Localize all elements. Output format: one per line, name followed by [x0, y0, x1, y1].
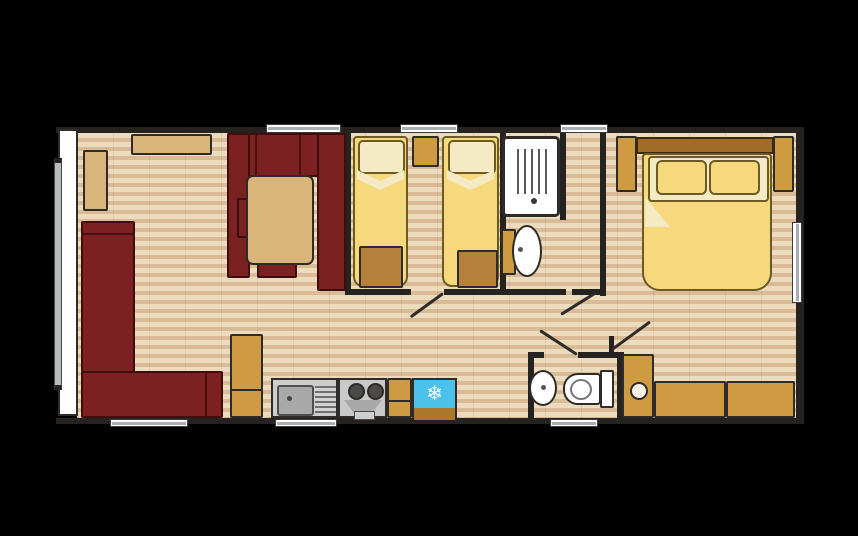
wardrobe-handle [630, 382, 648, 400]
oven-door [354, 411, 375, 420]
window-bottom-kitchen [275, 419, 337, 427]
toilet-bowl [563, 373, 601, 405]
bedside-cabinet [773, 136, 794, 192]
window-top-twin [400, 124, 458, 133]
double-bed [642, 153, 772, 291]
hob-burner [367, 383, 384, 400]
pillow [358, 140, 405, 174]
window-top-hall [560, 124, 608, 133]
bedside-shelf [412, 136, 439, 167]
shower-drain [531, 198, 537, 204]
bedside-cabinet [616, 136, 637, 192]
snowflake-icon: ❄ [414, 383, 455, 403]
wall-wc-top [528, 352, 544, 358]
drainer-ridges [315, 386, 336, 413]
toilet-cistern [600, 370, 614, 408]
wall-shower-right [560, 133, 566, 220]
wc-wash-basin [529, 370, 557, 406]
fridge: ❄ [412, 378, 457, 418]
wall-hallway [345, 289, 411, 295]
corner-sofa-bottom [81, 371, 223, 418]
dining-table [246, 175, 314, 265]
wardrobe [622, 354, 654, 418]
foot-locker [457, 250, 498, 288]
window-bottom-wc [550, 419, 598, 427]
basin-tap [541, 385, 546, 390]
corner-sofa-left [81, 221, 135, 373]
wall-master-left [600, 133, 606, 296]
basin-tap [518, 247, 523, 252]
window-master-right [792, 222, 802, 303]
foot-locker [359, 246, 403, 288]
front-window-glass [54, 158, 62, 390]
lounge-storage-cabinet [230, 334, 263, 418]
shower-ridges [517, 149, 548, 194]
window-top-lounge [266, 124, 341, 133]
sink-drainer-unit [271, 378, 338, 418]
pillow [656, 160, 707, 195]
chest-of-drawers [726, 381, 795, 418]
corner-shelf [83, 150, 108, 211]
wall-hallway [444, 289, 566, 295]
sideboard [131, 134, 212, 155]
pillow [448, 140, 496, 174]
wash-basin [512, 225, 542, 277]
worktop-unit [387, 378, 412, 418]
shower-cubicle [502, 136, 560, 217]
pillow [709, 160, 760, 195]
window-bottom-lounge [110, 419, 188, 427]
cooker-hob-oven [338, 378, 387, 418]
chest-of-drawers [654, 381, 726, 418]
dining-booth-right-bench [317, 133, 346, 291]
headboard [636, 137, 774, 154]
hob-burner [348, 383, 365, 400]
sink-drain [287, 396, 292, 401]
floor-plan-canvas: ❄ [0, 0, 858, 536]
